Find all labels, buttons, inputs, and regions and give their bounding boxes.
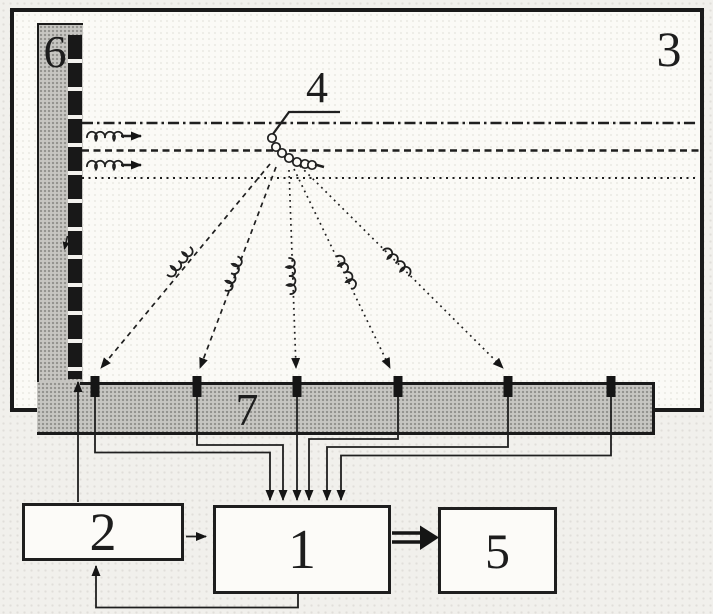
- detector-element: [293, 376, 302, 397]
- detector-wires: [95, 397, 611, 500]
- photon-coil-icon: [87, 132, 123, 141]
- photon-coil-icon: [87, 161, 123, 170]
- detector-element: [91, 376, 100, 397]
- ray-coil-icon: [334, 254, 358, 290]
- sample-chain: [268, 112, 340, 169]
- scattered-rays: [101, 164, 503, 368]
- ray-1: [101, 164, 270, 368]
- figure-page: 3 4 6 7 2 1 5: [0, 0, 713, 614]
- ray-4: [294, 169, 390, 368]
- wire-detector-6: [341, 397, 611, 500]
- feedback-line: [96, 566, 298, 608]
- beam-lines: [82, 123, 699, 178]
- detector-element: [193, 376, 202, 397]
- detector-element: [607, 376, 616, 397]
- ray-coil-icon: [286, 258, 296, 294]
- output-double-arrow: [392, 526, 439, 551]
- wire-detector-5: [327, 397, 508, 500]
- detector-element: [504, 376, 513, 397]
- wire-detector-4: [309, 397, 398, 500]
- detector-element: [394, 376, 403, 397]
- diagram-linework: [0, 0, 713, 614]
- ray-5: [300, 166, 503, 368]
- ray-coil-icon: [165, 245, 195, 278]
- output-arrowhead: [420, 526, 439, 551]
- ray-coil-icon: [222, 256, 243, 293]
- detector-array: [91, 376, 616, 397]
- scan-direction-arrow: [65, 236, 68, 249]
- wire-detector-1: [95, 397, 270, 500]
